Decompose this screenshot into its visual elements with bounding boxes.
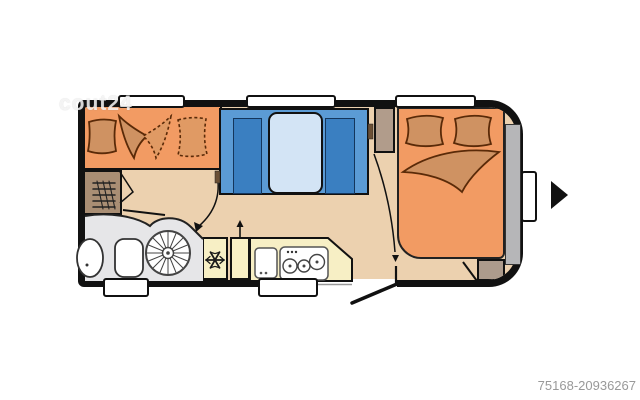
window-rear: [395, 95, 476, 108]
entry-door-opening: [317, 279, 397, 289]
service-door-kitchen: [258, 278, 318, 297]
heater-cabinet: [85, 170, 122, 215]
wardrobe: [374, 107, 395, 153]
rear-double-bed: [397, 107, 505, 259]
front-bunk-bed: [85, 107, 222, 170]
fridge: [202, 237, 228, 280]
watermark-text: cout24: [59, 92, 133, 116]
caravan-shell-walls: [78, 100, 523, 287]
service-door-bath: [103, 278, 149, 297]
rear-storage-strip: [505, 124, 521, 265]
dinette-table: [268, 112, 323, 194]
bed-foot-cabinet: [477, 259, 505, 280]
dinette-bench-left-cushion: [233, 118, 262, 194]
interior-floor: [85, 107, 516, 280]
dinette-bench-right-cushion: [325, 118, 355, 194]
side-window: [521, 171, 537, 222]
listing-id-text: 75168-20936267: [538, 378, 636, 393]
kitchen-cabinet: [230, 237, 250, 280]
hitch-arrow-icon: [551, 181, 568, 209]
window-middle: [246, 95, 336, 108]
floorplan-image: cout24 75168-20936267: [0, 0, 640, 400]
